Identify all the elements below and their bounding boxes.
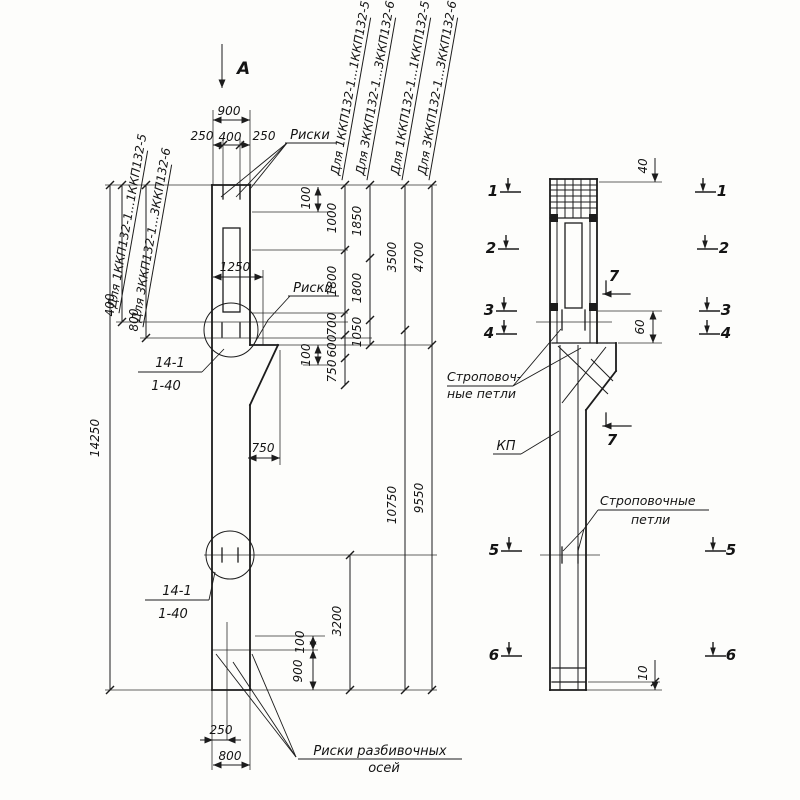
section-flag xyxy=(697,235,718,249)
dim-100: 100 xyxy=(299,186,313,209)
section-flag xyxy=(699,297,720,311)
dim-750: 750 xyxy=(252,441,275,455)
dim-3200: 3200 xyxy=(330,605,344,636)
dim-4700: 4700 xyxy=(412,241,426,272)
dim-900: 900 xyxy=(291,659,305,682)
dim-1000: 1000 xyxy=(325,202,339,233)
sling-loops-lower-line1: Строповочные xyxy=(600,493,696,508)
section-flag xyxy=(695,178,716,192)
dim-100: 100 xyxy=(299,343,313,366)
embedded-plate xyxy=(550,214,558,222)
section-number: 2 xyxy=(719,239,729,257)
section-number: 4 xyxy=(720,324,731,342)
section-number: 3 xyxy=(484,301,494,319)
riski-axes-line2: осей xyxy=(368,761,400,776)
detail-ref-lower: 14-1 xyxy=(162,584,192,599)
dim-1050: 1050 xyxy=(350,316,364,347)
dim-14250: 14250 xyxy=(88,419,102,458)
section-number: 5 xyxy=(726,541,736,559)
riski-label-top: Риски xyxy=(290,128,330,143)
section-flag xyxy=(500,178,521,192)
section-mark-7-lower: 7 xyxy=(603,413,631,449)
dim-750: 750 xyxy=(325,359,339,382)
dim-1250: 1250 xyxy=(220,260,251,274)
dimension-ticks xyxy=(106,141,659,694)
dim-400: 400 xyxy=(219,130,242,144)
drawing-sheet: А 7 7 xyxy=(0,0,800,800)
kp-label: КП xyxy=(496,439,515,454)
riski-label-mid: Риски xyxy=(293,281,333,296)
dim-250: 250 xyxy=(210,723,233,737)
corbel-bracing xyxy=(558,346,613,403)
section-number: 6 xyxy=(489,646,499,664)
section-number: 6 xyxy=(726,646,736,664)
recess-slot-side xyxy=(565,223,582,308)
detail-sheet-lower: 1-40 xyxy=(158,607,188,622)
section-flag xyxy=(496,297,517,311)
section-number: 1 xyxy=(488,182,498,200)
annotations: Риски Риски 14-1 1-40 14-1 1-40 Риски ра… xyxy=(151,128,696,776)
section-number: 5 xyxy=(489,541,499,559)
section-flag xyxy=(705,642,726,656)
dim-100: 100 xyxy=(293,630,307,653)
column-drawing: А 7 7 xyxy=(0,0,800,800)
embedded-plate xyxy=(589,303,597,311)
section-flag xyxy=(498,235,519,249)
sling-loops-upper-line1: Строповоч- xyxy=(447,369,522,384)
dim-10750: 10750 xyxy=(385,486,399,525)
section-flag xyxy=(501,537,522,551)
section-flag xyxy=(699,320,720,334)
dim-1850: 1850 xyxy=(350,205,364,236)
dim-700: 700 xyxy=(325,312,339,335)
dim-9550: 9550 xyxy=(412,482,426,513)
section-flag xyxy=(501,642,522,656)
dim-10: 10 xyxy=(636,665,650,681)
view-arrow-label: А xyxy=(235,59,250,79)
section-mark-7-upper: 7 xyxy=(603,267,630,294)
embedded-plate xyxy=(550,303,558,311)
section-number: 1 xyxy=(717,182,727,200)
section-flags: 1 2 3 4 5 6 1 2 3 4 5 6 xyxy=(483,178,736,664)
dim-1800: 1800 xyxy=(350,272,364,303)
dim-60: 60 xyxy=(633,319,647,335)
section-number: 4 xyxy=(483,324,494,342)
riski-axes-line1: Риски разбивочных xyxy=(313,744,447,759)
detail-ref-upper: 14-1 xyxy=(155,356,185,371)
section-flag xyxy=(496,320,517,334)
dim-3500: 3500 xyxy=(385,241,399,272)
dim-900: 900 xyxy=(218,104,241,118)
horizontal-dimension-labels: 900 250 400 250 1250 750 250 800 xyxy=(191,104,276,763)
detail-sheet-upper: 1-40 xyxy=(151,379,181,394)
section-number: 3 xyxy=(721,301,731,319)
section-number: 7 xyxy=(609,267,620,285)
dim-800: 800 xyxy=(219,749,242,763)
sling-loops-lower-line2: петли xyxy=(631,512,670,527)
sling-loops-upper-line2: ные петли xyxy=(447,386,516,401)
vertical-dimension-labels: 14250 400 800 100 1000 1850 1800 1800 70… xyxy=(88,158,650,682)
dim-250: 250 xyxy=(191,129,214,143)
section-flag xyxy=(705,537,726,551)
section-number: 7 xyxy=(607,431,618,449)
dim-250: 250 xyxy=(253,129,276,143)
dim-600: 600 xyxy=(325,334,339,357)
section-number: 2 xyxy=(486,239,496,257)
type-designation-labels: Для 1ККП132-1...1ККП132-5 Для 3ККП132-1.… xyxy=(104,0,460,327)
dim-40: 40 xyxy=(636,158,650,174)
embedded-plate xyxy=(589,214,597,222)
